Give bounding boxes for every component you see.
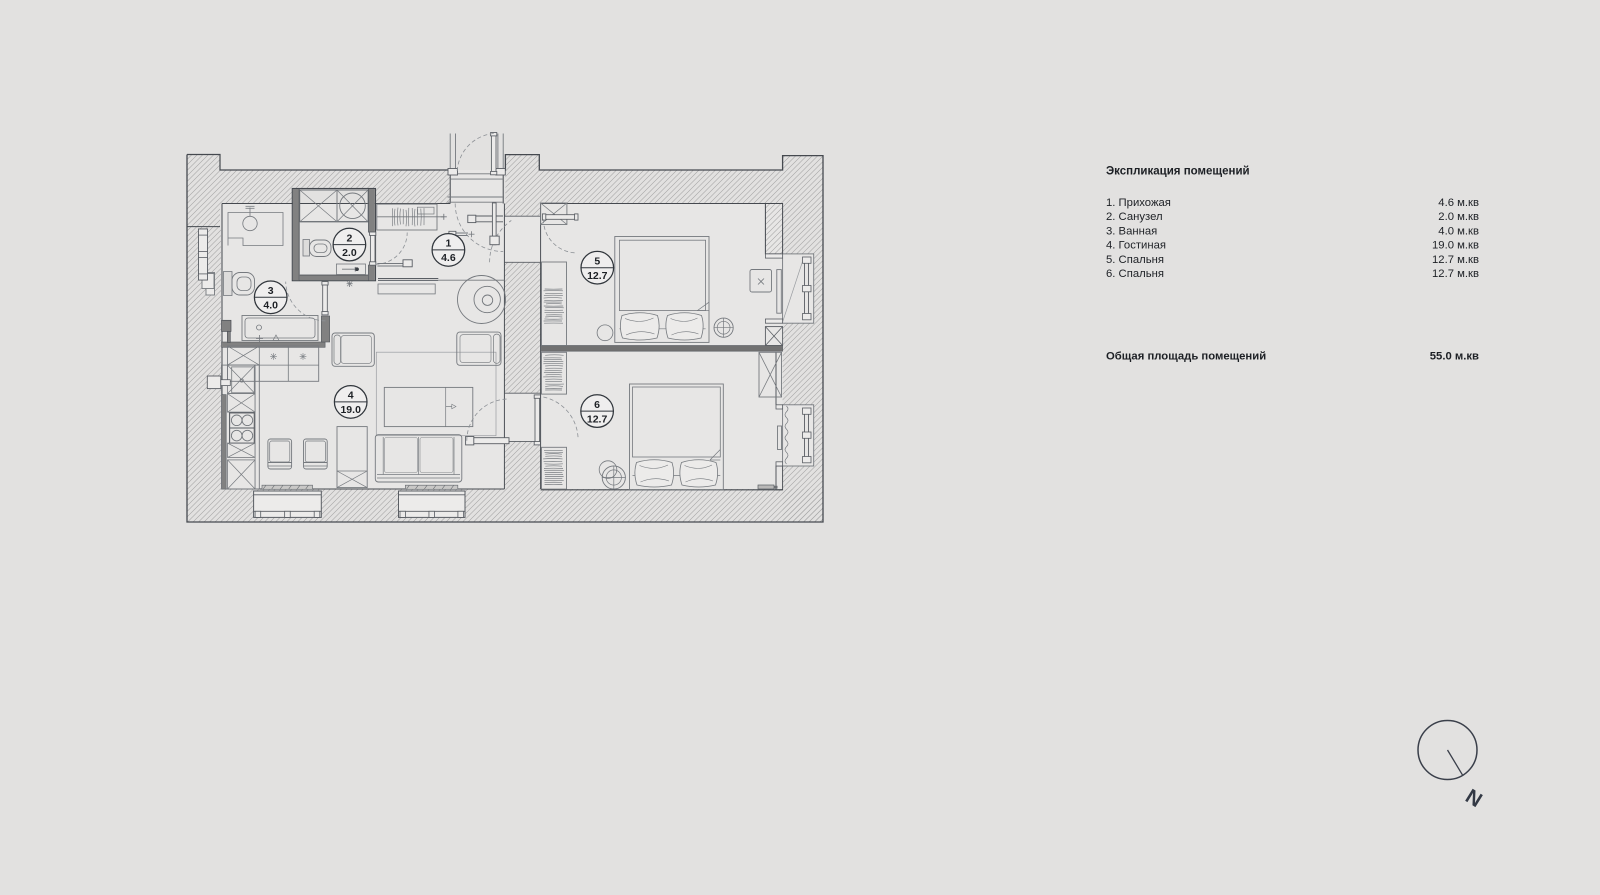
- svg-text:4.0: 4.0: [263, 300, 278, 312]
- svg-text:5. Спальня: 5. Спальня: [1106, 254, 1164, 266]
- svg-text:2. Санузел: 2. Санузел: [1106, 211, 1163, 223]
- svg-text:6. Спальня: 6. Спальня: [1106, 268, 1164, 280]
- svg-text:3. Ванная: 3. Ванная: [1106, 225, 1157, 237]
- svg-text:2: 2: [346, 232, 352, 244]
- svg-text:4.6 м.кв: 4.6 м.кв: [1438, 197, 1479, 209]
- svg-text:4. Гостиная: 4. Гостиная: [1106, 240, 1166, 252]
- svg-text:6: 6: [594, 399, 600, 411]
- svg-text:5: 5: [594, 256, 600, 268]
- svg-text:12.7: 12.7: [587, 413, 608, 425]
- svg-text:12.7: 12.7: [587, 270, 608, 282]
- svg-text:19.0 м.кв: 19.0 м.кв: [1432, 240, 1479, 252]
- svg-text:55.0 м.кв: 55.0 м.кв: [1430, 351, 1479, 363]
- svg-text:4.6: 4.6: [441, 252, 456, 264]
- svg-text:2.0 м.кв: 2.0 м.кв: [1438, 211, 1479, 223]
- svg-text:12.7 м.кв: 12.7 м.кв: [1432, 268, 1479, 280]
- svg-text:1: 1: [445, 238, 451, 250]
- svg-text:Общая площадь помещений: Общая площадь помещений: [1106, 351, 1266, 363]
- svg-text:12.7 м.кв: 12.7 м.кв: [1432, 254, 1479, 266]
- svg-text:19.0: 19.0: [340, 404, 361, 416]
- svg-text:4: 4: [348, 390, 354, 402]
- svg-text:4.0 м.кв: 4.0 м.кв: [1438, 225, 1479, 237]
- svg-text:1. Прихожая: 1. Прихожая: [1106, 197, 1171, 209]
- svg-text:3: 3: [268, 285, 274, 297]
- svg-text:Экспликация помещений: Экспликация помещений: [1106, 165, 1250, 177]
- svg-text:2.0: 2.0: [342, 247, 357, 259]
